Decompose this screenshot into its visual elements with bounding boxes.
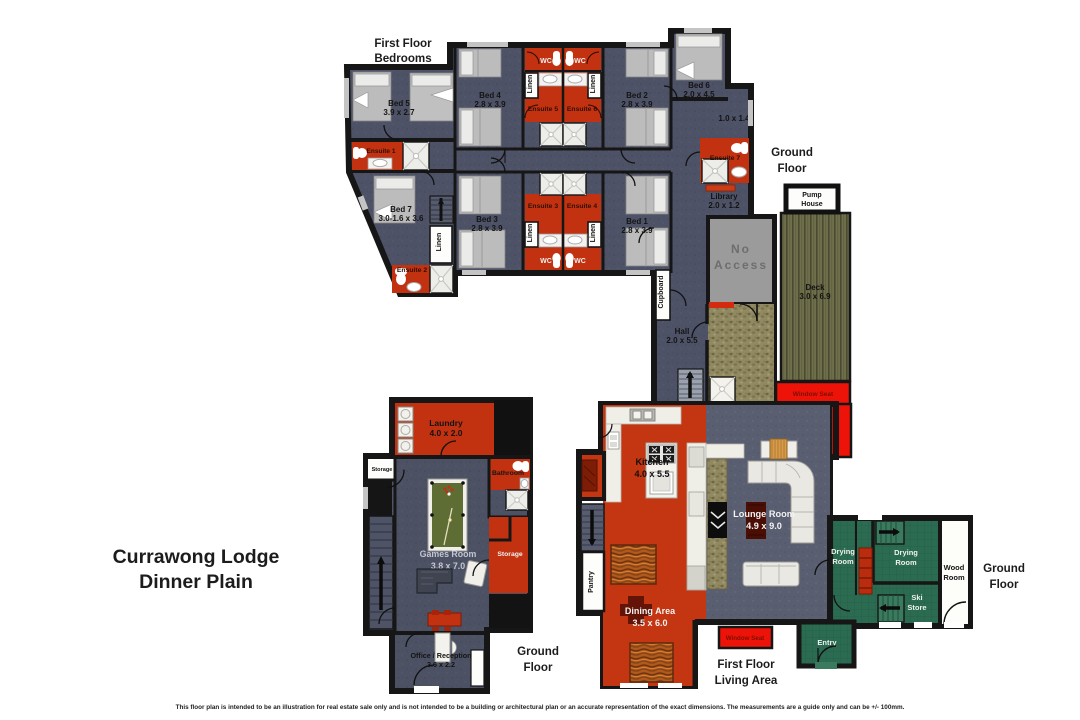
svg-text:Ensuite 3: Ensuite 3 bbox=[528, 203, 558, 210]
svg-text:2.0 x 5.5: 2.0 x 5.5 bbox=[666, 336, 698, 345]
svg-text:Bed 6: Bed 6 bbox=[688, 81, 710, 90]
svg-text:Games Room: Games Room bbox=[420, 549, 477, 559]
svg-text:2.8 x 3.9: 2.8 x 3.9 bbox=[471, 224, 503, 233]
svg-text:Room: Room bbox=[832, 557, 854, 566]
svg-text:House: House bbox=[801, 201, 823, 208]
svg-text:Bed 7: Bed 7 bbox=[390, 205, 412, 214]
svg-text:Storage: Storage bbox=[497, 551, 523, 558]
svg-text:Living Area: Living Area bbox=[715, 674, 778, 687]
svg-text:Floor: Floor bbox=[524, 661, 553, 674]
svg-text:2.8 x 3.9: 2.8 x 3.9 bbox=[474, 100, 506, 109]
svg-text:Ensuite 4: Ensuite 4 bbox=[567, 203, 597, 210]
svg-text:3.0-1.6 x 3.6: 3.0-1.6 x 3.6 bbox=[379, 214, 424, 223]
svg-text:Ground: Ground bbox=[771, 146, 813, 159]
svg-text:Window Seat: Window Seat bbox=[793, 391, 834, 398]
svg-text:Drying: Drying bbox=[831, 547, 855, 556]
svg-text:1.0 x 1.4: 1.0 x 1.4 bbox=[718, 114, 750, 123]
svg-text:3.6 x 2.2: 3.6 x 2.2 bbox=[427, 660, 455, 669]
svg-text:Linen: Linen bbox=[590, 75, 597, 94]
svg-text:Dining Area: Dining Area bbox=[625, 606, 676, 616]
svg-text:4.0 x 2.0: 4.0 x 2.0 bbox=[429, 428, 462, 438]
svg-text:This floor plan is intended to: This floor plan is intended to be an ill… bbox=[176, 704, 905, 711]
svg-text:First Floor: First Floor bbox=[374, 37, 432, 50]
svg-text:Bed 4: Bed 4 bbox=[479, 91, 501, 100]
svg-text:3.9 x 2.7: 3.9 x 2.7 bbox=[383, 108, 415, 117]
svg-text:2.8 x 3.9: 2.8 x 3.9 bbox=[621, 226, 653, 235]
svg-text:Ensuite 2: Ensuite 2 bbox=[397, 267, 427, 274]
svg-text:Linen: Linen bbox=[527, 75, 534, 94]
svg-text:WC: WC bbox=[574, 258, 586, 265]
svg-text:Hall: Hall bbox=[675, 327, 690, 336]
svg-text:Window Seat: Window Seat bbox=[726, 635, 764, 642]
svg-text:First Floor: First Floor bbox=[717, 658, 775, 671]
svg-text:3.0 x 6.9: 3.0 x 6.9 bbox=[799, 292, 831, 301]
svg-text:Linen: Linen bbox=[527, 224, 534, 243]
svg-text:Bed 1: Bed 1 bbox=[626, 217, 648, 226]
svg-text:Store: Store bbox=[907, 603, 926, 612]
svg-text:Linen: Linen bbox=[590, 224, 597, 243]
svg-text:Bed 5: Bed 5 bbox=[388, 99, 410, 108]
svg-text:Room: Room bbox=[895, 558, 917, 567]
svg-text:Floor: Floor bbox=[990, 578, 1019, 591]
svg-text:Ensuite 1: Ensuite 1 bbox=[367, 148, 396, 155]
svg-text:Room: Room bbox=[943, 573, 965, 582]
svg-text:3.5 x 6.0: 3.5 x 6.0 bbox=[632, 618, 667, 628]
svg-text:Bedrooms: Bedrooms bbox=[374, 52, 431, 65]
svg-text:Dinner Plain: Dinner Plain bbox=[139, 571, 253, 593]
svg-text:Ensuite 6: Ensuite 6 bbox=[567, 106, 597, 113]
svg-text:WC: WC bbox=[540, 58, 552, 65]
svg-text:Deck: Deck bbox=[805, 283, 825, 292]
svg-text:2.0 x 1.2: 2.0 x 1.2 bbox=[708, 201, 740, 210]
svg-text:Kitchen: Kitchen bbox=[635, 457, 668, 467]
svg-text:Storage: Storage bbox=[372, 467, 393, 473]
svg-text:Library: Library bbox=[710, 192, 738, 201]
svg-text:No: No bbox=[731, 242, 751, 256]
svg-text:4.0 x 5.5: 4.0 x 5.5 bbox=[634, 469, 669, 479]
svg-text:Access: Access bbox=[714, 258, 768, 272]
svg-text:Ground: Ground bbox=[983, 562, 1025, 575]
svg-text:Drying: Drying bbox=[894, 548, 918, 557]
svg-text:Ski: Ski bbox=[911, 593, 922, 602]
svg-text:WC: WC bbox=[540, 258, 552, 265]
svg-text:Office / Reception: Office / Reception bbox=[410, 651, 471, 660]
svg-text:Pump: Pump bbox=[802, 192, 821, 199]
svg-text:4.9 x 9.0: 4.9 x 9.0 bbox=[746, 521, 782, 531]
svg-text:Ensuite 5: Ensuite 5 bbox=[528, 106, 558, 113]
svg-text:Bed 3: Bed 3 bbox=[476, 215, 498, 224]
svg-text:2.0 x 4.5: 2.0 x 4.5 bbox=[683, 90, 715, 99]
svg-text:Linen: Linen bbox=[436, 233, 443, 252]
svg-text:Pantry: Pantry bbox=[588, 571, 595, 593]
svg-text:Currawong Lodge: Currawong Lodge bbox=[113, 546, 280, 568]
svg-text:WC: WC bbox=[574, 58, 586, 65]
svg-text:Ground: Ground bbox=[517, 645, 559, 658]
svg-text:Wood: Wood bbox=[944, 563, 965, 572]
svg-text:Ensuite 7: Ensuite 7 bbox=[710, 155, 740, 162]
svg-text:Floor: Floor bbox=[778, 162, 807, 175]
svg-text:Bed 2: Bed 2 bbox=[626, 91, 648, 100]
svg-text:2.8 x 3.9: 2.8 x 3.9 bbox=[621, 100, 653, 109]
svg-text:Lounge Room: Lounge Room bbox=[733, 509, 795, 519]
svg-text:Laundry: Laundry bbox=[429, 418, 463, 428]
svg-text:Bathroom: Bathroom bbox=[492, 470, 524, 477]
svg-text:Cupboard: Cupboard bbox=[658, 275, 665, 308]
